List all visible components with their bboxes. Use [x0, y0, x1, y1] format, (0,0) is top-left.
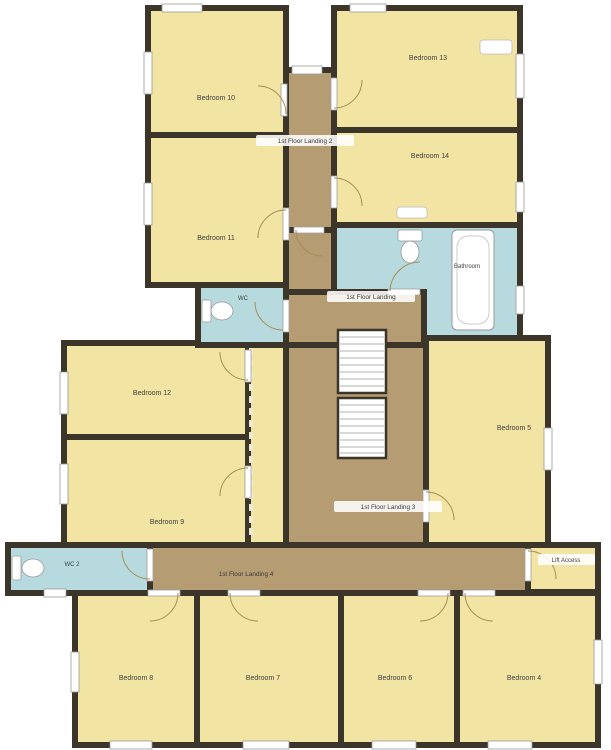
window — [110, 741, 152, 749]
label-landing-4: 1st Floor Landing 4 — [219, 571, 274, 578]
door-opening — [294, 227, 324, 233]
window — [60, 372, 68, 414]
radiator-icon — [397, 207, 427, 218]
label-wc: WC — [238, 296, 249, 302]
door-opening — [331, 176, 337, 208]
label-bedroom-5: Bedroom 5 — [497, 425, 531, 432]
label-wc-2: WC 2 — [65, 562, 81, 568]
bathtub-icon — [452, 230, 494, 330]
window — [350, 4, 386, 12]
window — [60, 464, 68, 504]
label-lift-access: Lift Access — [552, 558, 581, 564]
door-opening — [283, 208, 289, 240]
window — [71, 652, 79, 692]
staircase-upper-flight — [338, 330, 386, 393]
window — [243, 741, 289, 749]
floor-plan-svg: Bedroom 10 Bedroom 13 Bedroom 14 Bedroom… — [0, 0, 611, 750]
label-bedroom-9: Bedroom 9 — [150, 519, 184, 526]
room-bedroom-5 — [426, 338, 548, 545]
door-opening — [245, 466, 251, 498]
label-bedroom-13: Bedroom 13 — [409, 55, 447, 62]
toilet-icon — [401, 241, 419, 263]
label-bedroom-14: Bedroom 14 — [411, 153, 449, 160]
corridor-landing-2 — [286, 70, 334, 292]
room-bedroom-11 — [148, 135, 286, 285]
radiator-icon — [480, 40, 512, 54]
toilet-icon — [211, 302, 233, 320]
window — [516, 286, 524, 314]
toilet-icon — [12, 556, 21, 580]
room-bedroom-7 — [197, 593, 341, 745]
window — [372, 741, 416, 749]
label-bedroom-7: Bedroom 7 — [246, 675, 280, 682]
window — [292, 66, 322, 74]
room-closet-strip — [248, 343, 286, 545]
window — [144, 52, 152, 94]
toilet-icon — [22, 559, 44, 577]
toilet-icon — [398, 230, 422, 241]
label-bedroom-12: Bedroom 12 — [133, 390, 171, 397]
door-opening — [228, 590, 260, 596]
label-bathroom: Bathroom — [454, 264, 480, 270]
label-bedroom-4: Bedroom 4 — [507, 675, 541, 682]
staircase-lower-flight — [338, 398, 386, 458]
door-opening — [418, 590, 450, 596]
door-opening — [283, 300, 289, 332]
room-bedroom-13 — [334, 8, 520, 130]
window — [488, 741, 532, 749]
window — [162, 4, 202, 12]
window — [144, 183, 152, 225]
door-opening — [148, 590, 180, 596]
label-bedroom-10: Bedroom 10 — [197, 95, 235, 102]
label-bedroom-6: Bedroom 6 — [378, 675, 412, 682]
window — [44, 589, 66, 597]
staircase — [338, 330, 386, 458]
door-opening — [331, 78, 337, 110]
window — [544, 428, 552, 470]
corridor-landing-4 — [150, 545, 528, 593]
label-bedroom-8: Bedroom 8 — [119, 675, 153, 682]
room-bedroom-10 — [148, 8, 286, 135]
door-opening — [147, 549, 153, 581]
floor-plan-canvas: Bedroom 10 Bedroom 13 Bedroom 14 Bedroom… — [0, 0, 611, 750]
door-opening — [463, 590, 495, 596]
room-bedroom-4 — [457, 593, 598, 745]
window — [516, 54, 524, 98]
label-landing-1: 1st Floor Landing — [346, 294, 396, 301]
room-bedroom-8 — [75, 593, 197, 745]
label-landing-3: 1st Floor Landing 3 — [361, 504, 416, 511]
label-bedroom-11: Bedroom 11 — [197, 235, 235, 242]
window — [594, 640, 602, 684]
door-opening — [245, 350, 251, 382]
door-opening — [525, 549, 531, 581]
toilet-icon — [202, 300, 211, 322]
label-landing-2: 1st Floor Landing 2 — [278, 138, 333, 145]
room-lift-access — [528, 545, 598, 592]
window — [516, 182, 524, 212]
room-bedroom-6 — [341, 593, 457, 745]
